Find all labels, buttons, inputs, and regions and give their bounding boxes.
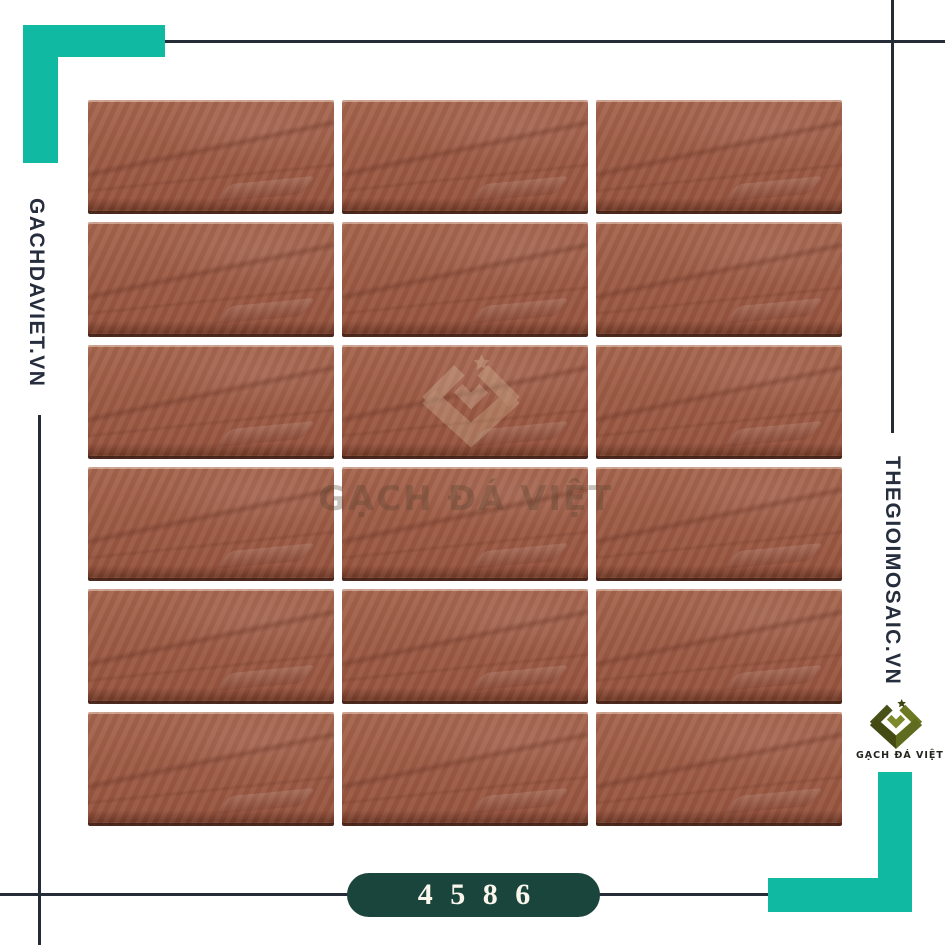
tile-photo — [342, 712, 588, 826]
teal-corner-top-left-vertical — [23, 25, 58, 163]
diamond-chevron-star-icon — [867, 699, 925, 749]
tile-photo — [596, 100, 842, 214]
tile-photo — [596, 589, 842, 703]
center-watermark-text: GẠCH ĐÁ VIỆT — [318, 479, 608, 519]
product-code-text: 4 5 8 6 — [418, 878, 536, 912]
left-rule-line — [38, 415, 41, 945]
tile-photo — [88, 345, 334, 459]
center-watermark-logo-icon — [418, 354, 524, 448]
tile-photo — [342, 589, 588, 703]
tile-photo — [596, 222, 842, 336]
tile-photo — [88, 712, 334, 826]
top-rule-line — [165, 40, 945, 43]
brand-logo-label: GẠCH ĐÁ VIỆT — [856, 750, 936, 761]
tile-photo — [88, 222, 334, 336]
tile-photo — [596, 345, 842, 459]
tile-photo — [88, 100, 334, 214]
product-image: GACHDAVIET.VN THEGIOIMOSAIC.VN GẠCH ĐÁ V… — [0, 0, 945, 945]
tile-photo — [596, 467, 842, 581]
tile-photo — [88, 589, 334, 703]
tile-photo — [342, 222, 588, 336]
brand-logo: GẠCH ĐÁ VIỆT — [856, 699, 936, 761]
teal-corner-bottom-right-vertical — [878, 772, 912, 912]
right-rule-line — [891, 0, 894, 433]
tile-grid — [88, 100, 842, 826]
tile-photo — [342, 100, 588, 214]
product-code-badge: 4 5 8 6 — [347, 873, 600, 917]
left-site-watermark: GACHDAVIET.VN — [24, 198, 48, 387]
tile-photo — [596, 712, 842, 826]
tile-photo — [88, 467, 334, 581]
right-site-watermark: THEGIOIMOSAIC.VN — [880, 456, 904, 685]
